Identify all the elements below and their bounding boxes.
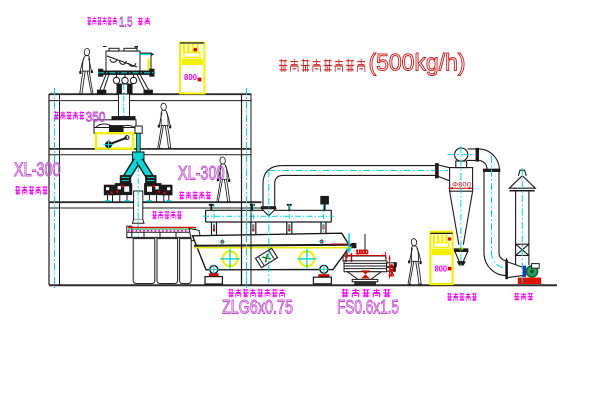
svg-text:ZLG6x0.75: ZLG6x0.75: [222, 297, 293, 319]
svg-text:XL-300: XL-300: [14, 159, 61, 181]
svg-text:800: 800: [184, 72, 197, 82]
svg-text:1.5: 1.5: [119, 13, 133, 29]
svg-text:800: 800: [435, 264, 448, 274]
svg-text:XL-300: XL-300: [178, 163, 225, 185]
svg-text:1500: 1500: [356, 250, 368, 256]
svg-text:350: 350: [86, 109, 106, 125]
svg-text:540: 540: [390, 267, 396, 276]
svg-text:(500kg/h): (500kg/h): [369, 50, 466, 77]
svg-text:FS0.6x1.5: FS0.6x1.5: [337, 297, 399, 319]
